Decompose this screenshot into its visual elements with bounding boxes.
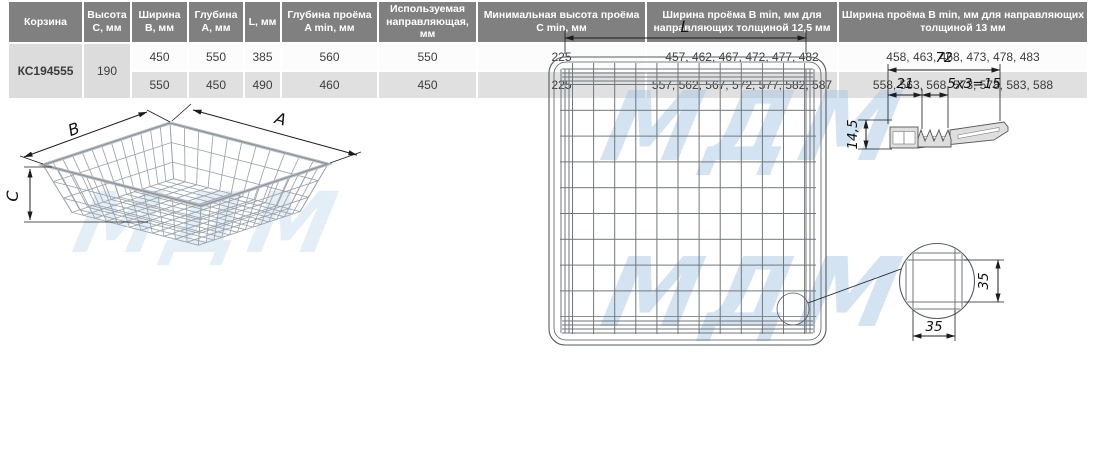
top-view-grid-horizontal [560, 84, 816, 317]
dim-label-l: L [681, 17, 690, 36]
dim-label-a: A [272, 108, 289, 129]
dim-label-35-horizontal: 35 [925, 319, 942, 335]
detail-magnifier-circle [900, 244, 975, 319]
technical-drawing: МДМ МДМ МДМ B A C [0, 0, 1106, 370]
dim-label-14-5: 14,5 [845, 119, 861, 149]
watermark-text: МДМ [66, 175, 353, 273]
catalog-sheet: МДМ МДМ МДМ B A C [0, 0, 1106, 467]
mesh-detail-drawing: 35 35 [898, 242, 1004, 341]
dim-label-b: B [65, 118, 82, 140]
dim-label-35-vertical: 35 [976, 272, 992, 289]
dim-label-72: 72 [935, 50, 952, 66]
dim-label-c: C [3, 190, 22, 202]
dim-label-21: 21 [896, 76, 913, 92]
dim-label-5x3: 5x3=15 [947, 76, 1001, 92]
